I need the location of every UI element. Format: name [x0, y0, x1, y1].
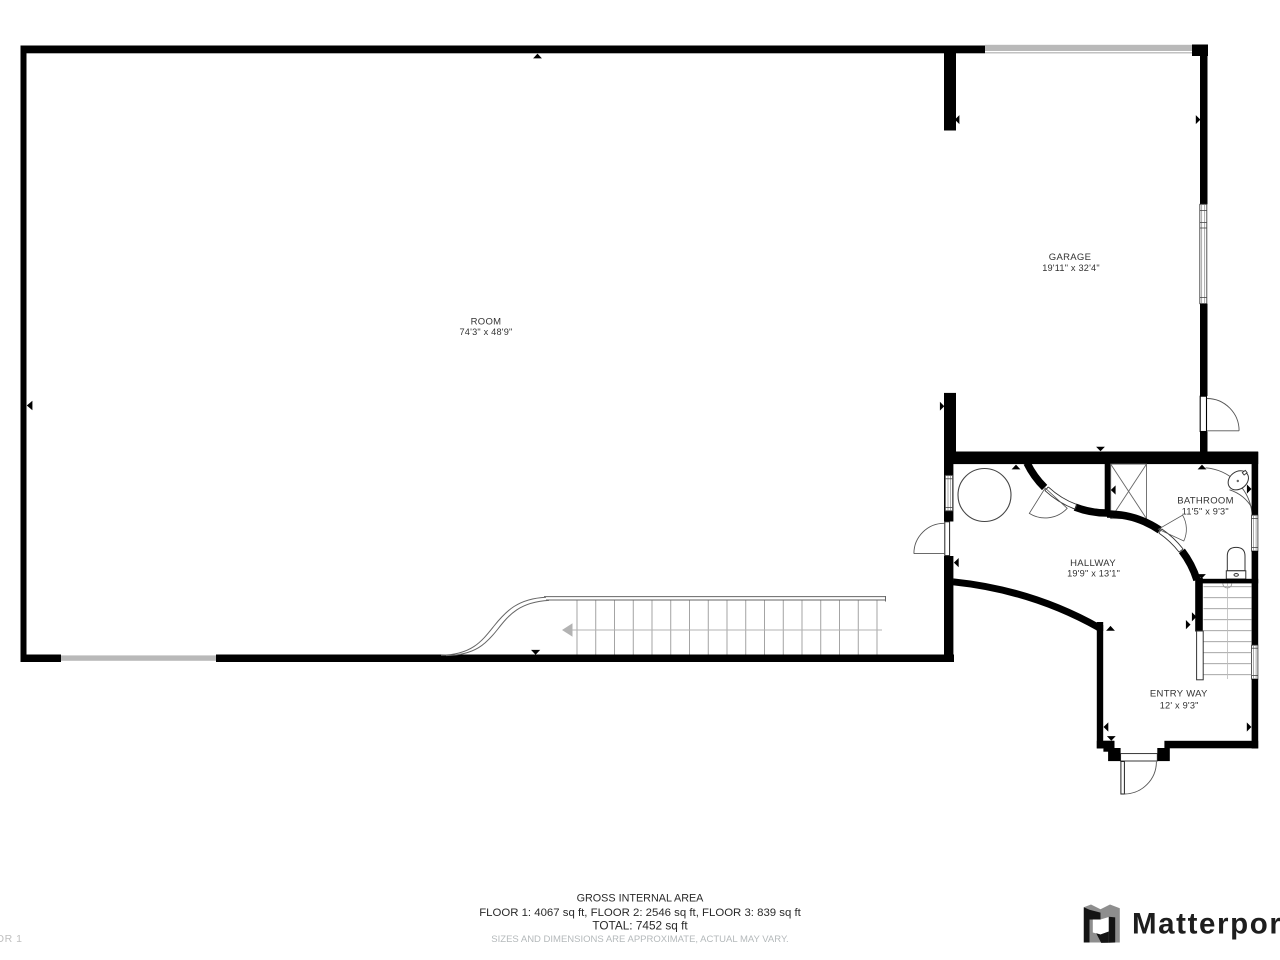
- svg-text:Matterport: Matterport: [1132, 908, 1280, 941]
- svg-text:FLOOR 1: 4067 sq ft, FLOOR 2:: FLOOR 1: 4067 sq ft, FLOOR 2: 2546 sq ft…: [479, 907, 801, 919]
- svg-text:ROOM: ROOM: [471, 317, 502, 328]
- svg-text:19'9" x 13'1": 19'9" x 13'1": [1067, 569, 1120, 579]
- svg-text:TOTAL: 7452 sq ft: TOTAL: 7452 sq ft: [592, 919, 688, 933]
- svg-text:19'11" x 32'4": 19'11" x 32'4": [1042, 263, 1100, 273]
- svg-text:11'5" x 9'3": 11'5" x 9'3": [1182, 507, 1229, 517]
- svg-text:12' x 9'3": 12' x 9'3": [1160, 701, 1199, 711]
- svg-text:BATHROOM: BATHROOM: [1177, 496, 1234, 507]
- svg-text:74'3" x 48'9": 74'3" x 48'9": [460, 327, 513, 337]
- svg-text:SIZES AND DIMENSIONS ARE APPRO: SIZES AND DIMENSIONS ARE APPROXIMATE, AC…: [491, 934, 788, 945]
- svg-text:GARAGE: GARAGE: [1049, 252, 1091, 263]
- svg-text:ENTRY WAY: ENTRY WAY: [1150, 689, 1208, 700]
- svg-text:FLOOR 1: FLOOR 1: [0, 933, 22, 945]
- svg-text:HALLWAY: HALLWAY: [1070, 558, 1116, 569]
- svg-text:GROSS INTERNAL AREA: GROSS INTERNAL AREA: [577, 893, 705, 905]
